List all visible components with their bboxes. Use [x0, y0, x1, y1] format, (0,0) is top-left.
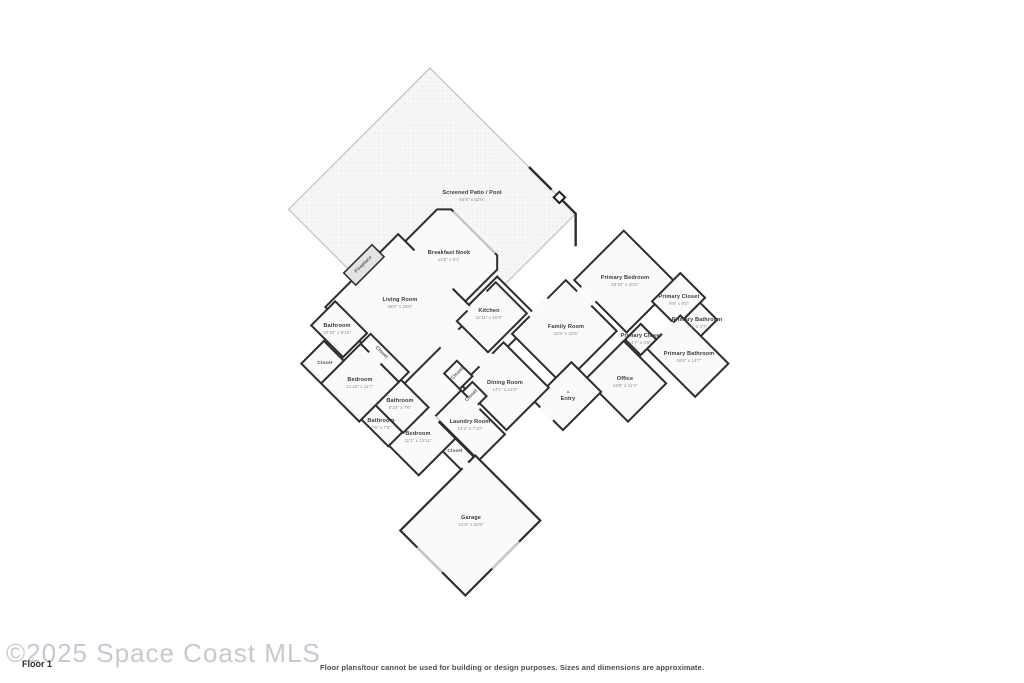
room-name: Primary Closet: [659, 294, 700, 300]
room-label-closet: Closet: [317, 361, 332, 367]
room-name: Living Room: [383, 297, 418, 303]
room-dimensions: 7'1" x 4'7": [672, 324, 722, 329]
room-label-living-room: Living Room28'0" x 28'6": [383, 297, 418, 309]
room-label-bathroom: Bathroom10'10" x 5'10": [323, 323, 351, 335]
room-label-breakfast-nook: Breakfast Nook13'6" x 9'1": [428, 250, 470, 262]
room-name: Bathroom: [323, 323, 351, 329]
room-dimensions: 28'0" x 28'6": [383, 304, 418, 309]
room-label-primary-bathroom: Primary Bathroom7'1" x 4'7": [672, 317, 722, 329]
room-label-garage: Garage21'8" x 20'6": [458, 515, 483, 527]
floorplan-page: Screened Patio / Pool64'8" x 52'6"Breakf…: [0, 0, 1024, 683]
room-label-bathroom: Bathroom8'10" x 7'6": [386, 398, 413, 410]
room-label-laundry-room: Laundry Room14'2" x 7'10": [450, 419, 491, 431]
room-name: Bedroom: [346, 377, 373, 383]
room-label-closet: Closet: [451, 367, 466, 382]
room-dimensions: 13'8" x 11'4": [613, 383, 638, 388]
room-dimensions: 11'11" x 10'8": [475, 315, 502, 320]
room-name: Dining Room: [487, 380, 523, 386]
room-dimensions: 7'6" x 7'6": [367, 425, 394, 430]
room-label-primary-bathroom: Primary Bathroom18'6" x 14'7": [664, 351, 714, 363]
room-name: Closet: [451, 367, 466, 382]
room-name: Closet: [447, 449, 462, 455]
room-label-bedroom: Bedroom11'1" x 12'11": [404, 431, 431, 443]
room-name: Garage: [458, 515, 483, 521]
room-dimensions: 14'2" x 7'10": [450, 426, 491, 431]
room-name: Primary Bedroom: [601, 275, 649, 281]
room-dimensions: 11'1" x 12'11": [404, 438, 431, 443]
room-dimensions: 14'1" x 12'0": [487, 387, 523, 392]
room-name: Closet: [374, 346, 389, 361]
room-name: Laundry Room: [450, 419, 491, 425]
room-name: Office: [613, 376, 638, 382]
disclaimer-text: Floor plans/tour cannot be used for buil…: [0, 663, 1024, 672]
room-name: Primary Closet: [621, 333, 662, 339]
room-name: Bathroom: [367, 418, 394, 424]
room-label-dining-room: Dining Room14'1" x 12'0": [487, 380, 523, 392]
room-name: Screened Patio / Pool: [442, 190, 501, 196]
room-label-kitchen: Kitchen11'11" x 10'8": [475, 308, 502, 320]
room-label-closet: Closet: [465, 389, 480, 404]
room-name: Closet: [465, 389, 480, 404]
entry-direction-icon: ▲: [561, 390, 576, 395]
room-name: Entry: [561, 396, 576, 402]
room-dimensions: 8'10" x 7'6": [386, 405, 413, 410]
room-label-closet: Closet: [447, 449, 462, 455]
room-label-screened-patio-pool: Screened Patio / Pool64'8" x 52'6": [442, 190, 501, 202]
room-label-primary-bedroom: Primary Bedroom23'10" x 20'1": [601, 275, 649, 287]
room-dimensions: 23'10" x 20'1": [601, 282, 649, 287]
room-label-fireplace: Fireplace: [354, 255, 373, 274]
room-labels-layer: Screened Patio / Pool64'8" x 52'6"Breakf…: [0, 0, 1024, 683]
room-name: Primary Bathroom: [664, 351, 714, 357]
room-dimensions: 11'10" x 11'7": [346, 384, 373, 389]
room-name: Breakfast Nook: [428, 250, 470, 256]
room-label-office: Office13'8" x 11'4": [613, 376, 638, 388]
room-name: Family Room: [548, 324, 584, 330]
room-dimensions: 21'8" x 20'6": [458, 522, 483, 527]
room-dimensions: 22'8" x 20'5": [548, 331, 584, 336]
room-name: Bedroom: [404, 431, 431, 437]
room-label-primary-closet: Primary Closet9'9" x 9'2": [659, 294, 700, 306]
room-name: Closet: [317, 361, 332, 367]
room-name: Bathroom: [386, 398, 413, 404]
room-label-entry: ▲Entry: [561, 390, 576, 402]
room-dimensions: 64'8" x 52'6": [442, 197, 501, 202]
room-dimensions: 9'9" x 9'2": [659, 301, 700, 306]
room-name: Fireplace: [354, 255, 373, 274]
room-dimensions: 10'10" x 5'10": [323, 330, 351, 335]
room-name: Kitchen: [475, 308, 502, 314]
room-label-primary-closet: Primary Closet4'7" x 4'6": [621, 333, 662, 345]
room-dimensions: 13'6" x 9'1": [428, 257, 470, 262]
room-label-family-room: Family Room22'8" x 20'5": [548, 324, 584, 336]
room-label-closet: Closet: [374, 346, 389, 361]
room-label-bedroom: Bedroom11'10" x 11'7": [346, 377, 373, 389]
room-name: Primary Bathroom: [672, 317, 722, 323]
room-dimensions: 4'7" x 4'6": [621, 340, 662, 345]
room-label-bathroom: Bathroom7'6" x 7'6": [367, 418, 394, 430]
room-dimensions: 18'6" x 14'7": [664, 358, 714, 363]
